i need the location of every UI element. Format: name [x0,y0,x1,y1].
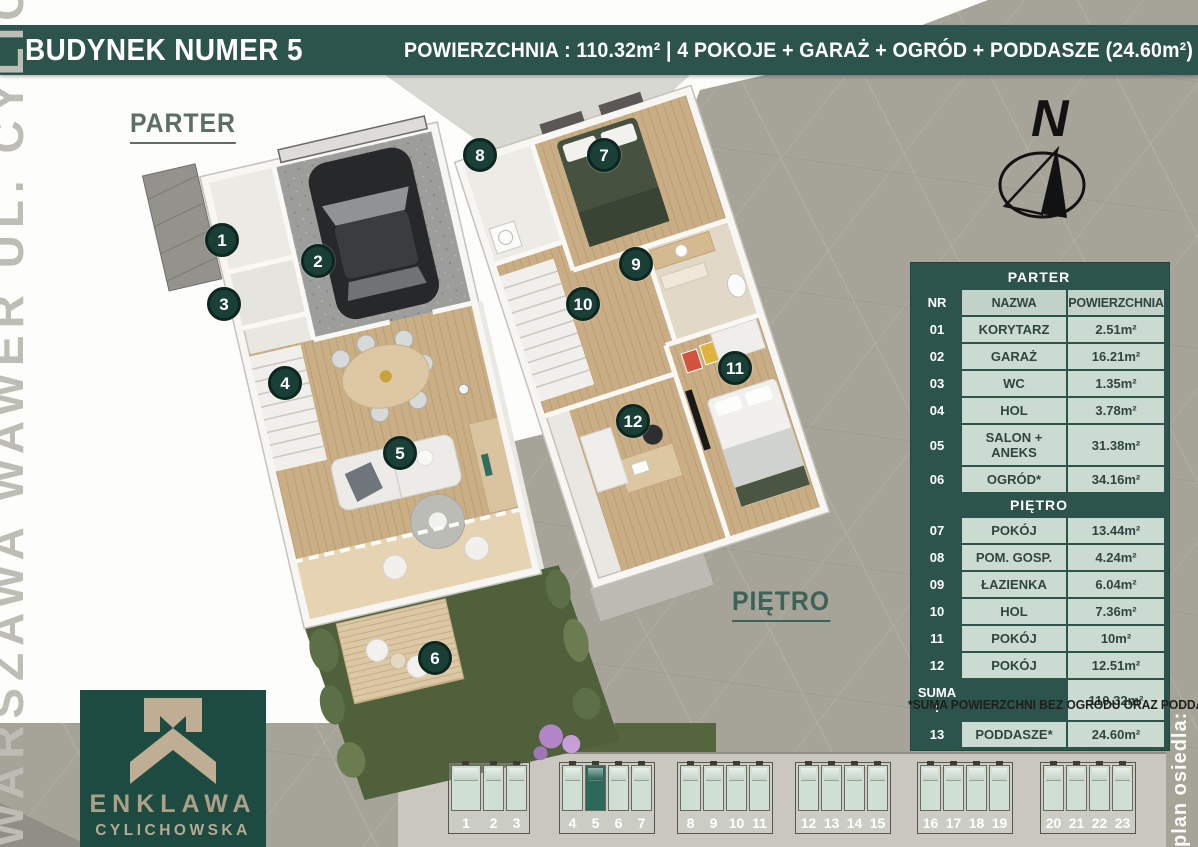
site-unit: 19 [989,765,1010,831]
building-summary: POWIERZCHNIA : 110.32m² | 4 POKOJE + GAR… [404,25,1193,75]
compass: N [995,88,1095,228]
site-unit: 13 [821,765,842,831]
row-area: 6.04m² [1068,572,1164,597]
row-name: POKÓJ [962,653,1066,678]
room-marker-12: 12 [616,404,650,438]
row-area: 7.36m² [1068,599,1164,624]
parter-label: PARTER [130,108,236,144]
brand-logo-icon [129,698,217,786]
site-unit: 14 [844,765,865,831]
table-footnote: *SUMA POWIERZCHNI BEZ OGRODU ORAZ PODDAS… [908,698,1156,712]
brand-name-line1: ENKLAWA [80,790,266,819]
row-name: GARAŻ [962,344,1066,369]
site-unit: 9 [703,765,724,831]
row-area: 2.51m² [1068,317,1164,342]
row-nr: 13 [914,722,960,747]
room-marker-3: 3 [207,287,241,321]
poster-page: BUDYNEK NUMER 5 POWIERZCHNIA : 110.32m² … [0,0,1198,847]
row-nr: 06 [914,467,960,492]
room-marker-4: 4 [268,366,302,400]
row-name: PODDASZE* [962,722,1066,747]
room-marker-11: 11 [718,351,752,385]
brand-name-line2: CYLICHOWSKA [80,822,266,840]
site-block-3: 8 9 10 11 [677,762,773,834]
compass-north-letter: N [1031,90,1070,148]
site-unit: 3 [506,765,527,831]
row-nr: 11 [914,626,960,651]
row-name: WC [962,371,1066,396]
row-name: POM. GOSP. [962,545,1066,570]
col-header-nazwa: NAZWA [962,290,1066,315]
row-nr: 09 [914,572,960,597]
room-marker-2: 2 [301,244,335,278]
row-area: 3.78m² [1068,398,1164,423]
site-plan-vertical-label: plan osiedla: [1169,726,1192,847]
site-plan-blocks: 1 2 3 4 5 6 7 8 9 10 11 12 13 14 15 16 1… [448,762,1136,834]
row-nr: 02 [914,344,960,369]
site-unit: 10 [726,765,747,831]
row-name: KORYTARZ [962,317,1066,342]
row-area: 24.60m² [1068,722,1164,747]
site-block-4: 12 13 14 15 [795,762,891,834]
site-unit: 11 [749,765,770,831]
row-area: 12.51m² [1068,653,1164,678]
room-marker-1: 1 [205,223,239,257]
room-marker-10: 10 [566,287,600,321]
site-block-5: 16 17 18 19 [917,762,1013,834]
row-nr: 10 [914,599,960,624]
table-section-parter: PARTER [914,266,1164,288]
row-area: 1.35m² [1068,371,1164,396]
col-header-powierzchnia: POWIERZCHNIA [1068,290,1164,315]
room-marker-7: 7 [587,138,621,172]
brand-logo: ENKLAWA CYLICHOWSKA [80,690,266,847]
room-marker-8: 8 [463,138,497,172]
row-name: HOL [962,599,1066,624]
row-area: 16.21m² [1068,344,1164,369]
site-unit: 21 [1066,765,1087,831]
site-block-1: 1 2 3 [448,762,530,834]
col-header-nr: NR [914,290,960,315]
table-section-pietro: PIĘTRO [914,494,1164,516]
pietro-label: PIĘTRO [732,586,830,622]
row-nr: 07 [914,518,960,543]
site-unit: 4 [562,765,583,831]
row-nr: 01 [914,317,960,342]
row-nr: 03 [914,371,960,396]
area-table: PARTER NR NAZWA POWIERZCHNIA 01 KORYTARZ… [910,262,1170,751]
row-nr: 08 [914,545,960,570]
room-marker-9: 9 [619,247,653,281]
row-name: POKÓJ [962,518,1066,543]
row-area: 34.16m² [1068,467,1164,492]
row-name: HOL [962,398,1066,423]
row-name: SALON + ANEKS [962,425,1066,465]
site-unit: 17 [943,765,964,831]
row-nr: 04 [914,398,960,423]
site-unit: 2 [483,765,504,831]
street-vertical-label: WARSZAWA WAWER UL. CYLICHOWSKA [0,62,34,847]
row-name: OGRÓD* [962,467,1066,492]
site-unit: 18 [966,765,987,831]
site-unit-highlighted: 5 [585,765,606,831]
site-unit: 7 [631,765,652,831]
site-block-6: 20 21 22 23 [1040,762,1136,834]
row-name: ŁAZIENKA [962,572,1066,597]
row-nr: 05 [914,425,960,465]
row-area: 13.44m² [1068,518,1164,543]
site-unit: 20 [1043,765,1064,831]
building-title: BUDYNEK NUMER 5 [25,25,303,75]
pietro-plan-group [448,78,836,623]
site-unit: 1 [451,765,481,831]
site-unit: 15 [867,765,888,831]
site-unit: 23 [1112,765,1133,831]
site-unit: 16 [920,765,941,831]
row-nr: 12 [914,653,960,678]
site-block-2: 4 5 6 7 [559,762,655,834]
site-unit: 22 [1089,765,1110,831]
row-area: 4.24m² [1068,545,1164,570]
header-bar: BUDYNEK NUMER 5 POWIERZCHNIA : 110.32m² … [0,25,1198,75]
site-unit: 12 [798,765,819,831]
room-marker-6: 6 [418,641,452,675]
row-area: 31.38m² [1068,425,1164,465]
site-unit: 6 [608,765,629,831]
site-unit: 8 [680,765,701,831]
row-name: POKÓJ [962,626,1066,651]
room-marker-5: 5 [383,436,417,470]
row-area: 10m² [1068,626,1164,651]
